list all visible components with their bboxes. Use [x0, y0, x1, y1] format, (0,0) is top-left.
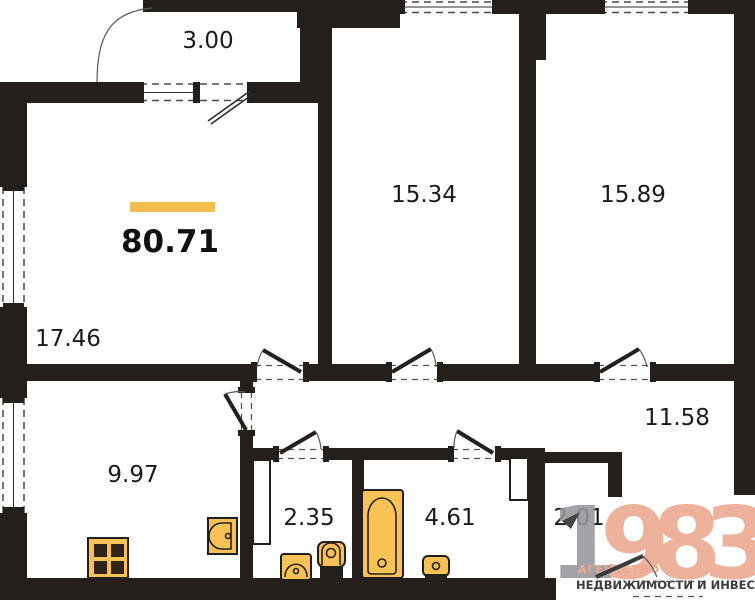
door-living — [251, 350, 309, 382]
window-bedroom-2 — [598, 0, 695, 14]
wall-divider-c — [437, 364, 598, 381]
wall-top-bed1 — [297, 0, 400, 28]
bathtub-icon — [362, 490, 403, 578]
duct-shaft-bath — [510, 458, 528, 500]
wall-balcony-top — [143, 0, 300, 12]
room-area-living: 17.46 — [35, 326, 101, 352]
wall-kitchen-b — [240, 431, 253, 578]
floor-plan-svg: 80.71 3.00 15.34 15.89 17.46 9.97 2.35 4… — [0, 0, 755, 600]
kitchen-sink-icon — [208, 518, 237, 554]
window-kitchen-left — [3, 396, 24, 514]
door-bedroom-1 — [386, 349, 443, 382]
room-area-bathroom: 4.61 — [424, 505, 475, 531]
windows — [3, 0, 695, 514]
wc-sink-icon — [281, 554, 311, 580]
window-living-left — [3, 184, 24, 310]
window-bedroom-1 — [398, 0, 499, 14]
floor-plan-screenshot: 80.71 3.00 15.34 15.89 17.46 9.97 2.35 4… — [0, 0, 755, 600]
room-area-hallway: 11.58 — [644, 405, 710, 431]
room-area-kitchen: 9.97 — [107, 462, 158, 488]
wall-left-top — [0, 82, 27, 187]
agency-logo: 1983 АГЕНТСТВО НЕДВИЖИМОСТИ И ИНВЕСТИЦИЙ — [549, 485, 755, 600]
wall-interbed-top — [519, 14, 546, 60]
wc-toilet-icon — [318, 542, 345, 579]
wall-divider-d — [650, 364, 734, 381]
duct-shaft-wc — [253, 460, 270, 544]
wall-topleft-b — [252, 82, 318, 103]
wall-left-mid — [0, 307, 27, 398]
bathroom-toilet-icon — [423, 556, 449, 580]
wall-balcony-curve — [97, 8, 152, 84]
wall-right — [734, 8, 755, 495]
wall-interbed — [519, 60, 536, 366]
wall-top-mid — [497, 0, 600, 14]
wall-divider-a — [25, 364, 255, 381]
room-area-balcony: 3.00 — [182, 28, 233, 54]
wall-corr-b — [323, 448, 452, 460]
stove-icon — [88, 538, 128, 578]
door-bathroom — [448, 431, 501, 462]
wall-bed1-left — [318, 28, 332, 366]
accent-bar — [130, 202, 215, 212]
total-area-value: 80.71 — [121, 224, 219, 260]
window-balcony — [137, 82, 254, 124]
logo-caption-2: НЕДВИЖИМОСТИ И ИНВЕСТИЦИЙ — [576, 577, 755, 592]
wall-divider-b — [303, 364, 390, 381]
door-bedroom-2 — [594, 349, 656, 382]
balcony-door-leaf — [208, 91, 253, 124]
room-area-bedroom-2: 15.89 — [600, 182, 666, 208]
wall-bath-hall — [528, 448, 545, 583]
room-area-bedroom-1: 15.34 — [391, 182, 457, 208]
room-area-wc: 2.35 — [283, 505, 334, 531]
door-kitchen — [225, 387, 255, 436]
door-wc — [273, 432, 329, 462]
